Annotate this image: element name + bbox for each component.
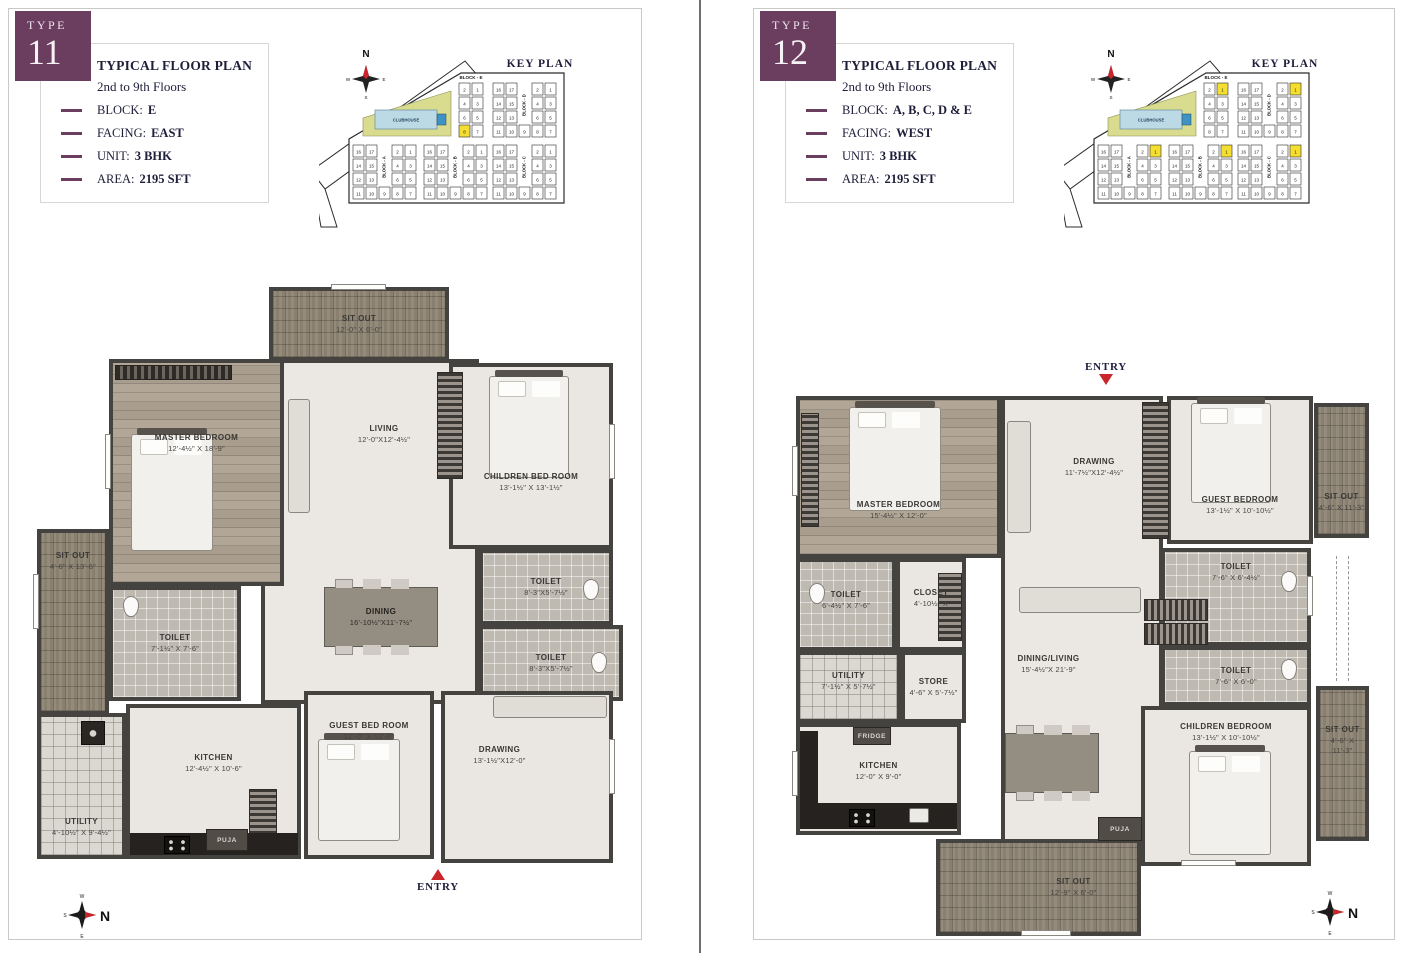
info-value: EAST bbox=[151, 126, 184, 141]
svg-text:E: E bbox=[1328, 931, 1332, 937]
room-dims-label: 12'-0" X 12'-0" bbox=[344, 732, 394, 742]
wardrobe-graphic bbox=[1144, 599, 1208, 621]
window-graphic bbox=[1181, 860, 1236, 866]
keyplan-title: KEY PLAN bbox=[507, 58, 574, 70]
room-dims-label: 4'-10½" X 9'-4½" bbox=[52, 828, 111, 838]
brochure-canvas: TYPE 11 TYPICAL FLOOR PLAN 2nd to 9th Fl… bbox=[0, 0, 1401, 953]
info-label: FACING: bbox=[97, 126, 146, 141]
entry-marker: ENTRY bbox=[406, 869, 470, 893]
svg-text:17: 17 bbox=[509, 150, 515, 155]
key-plan: CLUBHOUSENWESKEY PLANBLOCK - E2143658716… bbox=[1064, 21, 1394, 233]
entry-arrow-icon bbox=[1099, 374, 1113, 385]
svg-text:W: W bbox=[1091, 77, 1096, 82]
room-name-label: TOILET bbox=[536, 653, 567, 664]
info-value: 2195 SFT bbox=[140, 172, 191, 187]
keyplan-title: KEY PLAN bbox=[1252, 58, 1319, 70]
room-dims-label: 4'-6" X 11'-3" bbox=[1319, 503, 1364, 513]
entry-arrow-icon bbox=[431, 869, 445, 880]
room-dims-label: 12'-0" X 9'-0" bbox=[855, 772, 901, 782]
room-name-label: DINING bbox=[366, 607, 396, 618]
sofa-graphic bbox=[288, 399, 310, 513]
room-name-label: MASTER BEDROOM bbox=[155, 433, 238, 444]
svg-text:BLOCK - B: BLOCK - B bbox=[453, 156, 458, 178]
svg-text:N: N bbox=[1348, 905, 1358, 921]
room-sit-out-left: SIT OUT 4'-6" X 13'-6" bbox=[37, 529, 109, 715]
window-graphic bbox=[792, 751, 798, 796]
info-subtitle: 2nd to 9th Floors bbox=[97, 79, 268, 95]
svg-text:16: 16 bbox=[1172, 150, 1178, 155]
kitchen-counter bbox=[800, 803, 957, 829]
room-name-label: CLOSET bbox=[914, 588, 949, 599]
svg-text:17: 17 bbox=[1185, 150, 1191, 155]
wardrobe-graphic bbox=[1144, 623, 1208, 645]
dash-icon bbox=[61, 132, 82, 135]
dash-icon bbox=[61, 178, 82, 181]
info-row-unit: UNIT:3 BHK bbox=[806, 149, 1013, 164]
dining-table: DINING 16'-10½"X11'-7½" bbox=[324, 587, 438, 647]
svg-text:16: 16 bbox=[427, 150, 433, 155]
svg-text:14: 14 bbox=[1241, 102, 1247, 107]
svg-text:11: 11 bbox=[496, 192, 501, 197]
boundary-dashes bbox=[1348, 556, 1349, 681]
info-row-facing: FACING:WEST bbox=[806, 126, 1013, 141]
room-name-label: KITCHEN bbox=[859, 761, 897, 772]
room-name-label: DRAWING bbox=[479, 745, 520, 756]
info-row-facing: FACING:EAST bbox=[61, 126, 268, 141]
svg-text:S: S bbox=[1109, 95, 1112, 100]
window-graphic bbox=[1307, 576, 1313, 616]
room-dims-label: 13'-1½" X 13'-1½" bbox=[499, 483, 562, 493]
room-dims-label: 7'-1½" X 7'-6" bbox=[151, 644, 199, 654]
svg-text:14: 14 bbox=[496, 164, 502, 169]
svg-text:10: 10 bbox=[1254, 130, 1260, 135]
svg-text:16: 16 bbox=[1241, 88, 1247, 93]
window-graphic bbox=[1021, 930, 1071, 936]
svg-text:14: 14 bbox=[1172, 164, 1178, 169]
room-dims-label: 12'-0"X12'-4½" bbox=[358, 435, 410, 445]
info-row-area: AREA:2195 SFT bbox=[806, 172, 1013, 187]
info-row-block: BLOCK:E bbox=[61, 103, 268, 118]
svg-text:17: 17 bbox=[440, 150, 446, 155]
svg-text:15: 15 bbox=[1114, 164, 1120, 169]
room-dims-label: 13'-1½" X 10'-10½" bbox=[1206, 506, 1274, 516]
svg-text:17: 17 bbox=[369, 150, 375, 155]
room-dims-label: 4'-10½" X bbox=[914, 599, 948, 609]
sink-icon bbox=[909, 808, 929, 823]
info-label: FACING: bbox=[842, 126, 891, 141]
svg-text:12: 12 bbox=[356, 178, 362, 183]
bed-graphic bbox=[489, 376, 569, 478]
room-name-label: TOILET bbox=[1221, 562, 1252, 573]
info-row-unit: UNIT:3 BHK bbox=[61, 149, 268, 164]
svg-text:W: W bbox=[80, 894, 85, 900]
window-graphic bbox=[105, 434, 111, 489]
svg-text:12: 12 bbox=[496, 178, 502, 183]
room-name-label: TOILET bbox=[1221, 666, 1252, 677]
room-dims-label: 4'-6" X 5'-7½" bbox=[909, 688, 957, 698]
entry-label: ENTRY bbox=[1074, 361, 1138, 373]
svg-text:17: 17 bbox=[509, 88, 515, 93]
window-graphic bbox=[609, 739, 615, 794]
svg-text:S: S bbox=[1311, 910, 1315, 916]
svg-text:10: 10 bbox=[369, 192, 375, 197]
room-sit-out-right: SIT OUT 4'-6" X 11'-3" bbox=[1316, 686, 1369, 841]
room-dims-label: 4'-6" X 11'-3" bbox=[1320, 736, 1365, 756]
room-name-label: SIT OUT bbox=[56, 551, 90, 562]
entry-label: ENTRY bbox=[406, 881, 470, 893]
info-value: 3 BHK bbox=[880, 149, 917, 164]
svg-text:BLOCK - B: BLOCK - B bbox=[1198, 156, 1203, 178]
room-dims-label: 13'-1½"X12'-0" bbox=[473, 756, 525, 766]
compass-icon: WSEN bbox=[56, 886, 128, 940]
info-subtitle: 2nd to 9th Floors bbox=[842, 79, 1013, 95]
type-badge: TYPE 12 bbox=[760, 11, 836, 81]
info-value: E bbox=[148, 103, 156, 118]
svg-text:W: W bbox=[346, 77, 351, 82]
window-graphic bbox=[609, 424, 615, 479]
svg-text:13: 13 bbox=[509, 178, 515, 183]
svg-text:W: W bbox=[1328, 891, 1333, 897]
info-row-area: AREA:2195 SFT bbox=[61, 172, 268, 187]
room-utility: UTILITY 7'-1½" X 5'-7½" bbox=[796, 651, 901, 723]
svg-text:E: E bbox=[382, 77, 385, 82]
svg-text:S: S bbox=[364, 95, 367, 100]
compass-icon: WSEN bbox=[1304, 883, 1376, 939]
window-graphic bbox=[33, 574, 39, 629]
svg-text:16: 16 bbox=[496, 150, 502, 155]
svg-text:E: E bbox=[80, 934, 84, 940]
room-dims-label: 8'-3"X5'-7½" bbox=[524, 588, 568, 598]
svg-text:N: N bbox=[362, 49, 369, 60]
svg-text:10: 10 bbox=[509, 192, 515, 197]
sofa-graphic bbox=[1019, 587, 1141, 613]
svg-text:15: 15 bbox=[509, 102, 515, 107]
page-type-12: TYPE 12 TYPICAL FLOOR PLAN 2nd to 9th Fl… bbox=[753, 8, 1395, 940]
room-name-label: MASTER BEDROOM bbox=[857, 500, 940, 511]
room-dims-label: 8'-3"X5'-7½" bbox=[529, 664, 573, 674]
svg-text:13: 13 bbox=[509, 116, 515, 121]
room-name-label: DRAWING bbox=[1073, 457, 1114, 468]
room-name-label: SIT OUT bbox=[1325, 725, 1359, 736]
type-badge-label: TYPE bbox=[772, 18, 836, 33]
info-label: AREA: bbox=[842, 172, 880, 187]
svg-text:11: 11 bbox=[1172, 192, 1177, 197]
room-sit-out-top: SIT OUT 12'-0" X 6'-0" bbox=[269, 287, 449, 361]
svg-text:N: N bbox=[100, 908, 110, 924]
type-badge-number: 12 bbox=[772, 34, 836, 70]
room-dims-label: 12'-4½" X 10'-6" bbox=[185, 764, 242, 774]
info-label: BLOCK: bbox=[97, 103, 143, 118]
info-label: BLOCK: bbox=[842, 103, 888, 118]
room-dims-label: 11'-7½"X12'-4½" bbox=[1065, 468, 1123, 478]
room-name-label: PUJA bbox=[1110, 826, 1130, 833]
room-name-label: SIT OUT bbox=[1056, 877, 1090, 888]
room-name-label: CHILDREN BED ROOM bbox=[484, 472, 578, 483]
svg-text:16: 16 bbox=[1241, 150, 1247, 155]
bed-graphic bbox=[849, 407, 941, 511]
info-value: 3 BHK bbox=[135, 149, 172, 164]
room-name-label: LIVING bbox=[369, 424, 398, 435]
svg-text:15: 15 bbox=[369, 164, 375, 169]
room-dims-label: 6'-4½" X 7'-6" bbox=[822, 601, 870, 611]
dash-icon bbox=[806, 178, 827, 181]
room-dims-label: 16'-10½"X11'-7½" bbox=[350, 618, 413, 628]
dash-icon bbox=[806, 155, 827, 158]
svg-text:15: 15 bbox=[1254, 102, 1260, 107]
svg-text:E: E bbox=[1127, 77, 1130, 82]
svg-text:11: 11 bbox=[496, 130, 501, 135]
svg-text:11: 11 bbox=[1241, 130, 1246, 135]
room-dims-label: 12'-0" X 6'-0" bbox=[336, 325, 382, 335]
clubhouse-label: CLUBHOUSE bbox=[1138, 118, 1165, 123]
entry-marker: ENTRY bbox=[1074, 361, 1138, 385]
info-value: WEST bbox=[896, 126, 932, 141]
svg-text:15: 15 bbox=[1185, 164, 1191, 169]
svg-text:16: 16 bbox=[356, 150, 362, 155]
room-toilet-left: TOILET 6'-4½" X 7'-6" bbox=[796, 558, 896, 651]
floor-plan-type-12: MASTER BEDROOM 15'-4½" X 12'-0" GUEST BE… bbox=[791, 391, 1391, 940]
fridge-label: FRIDGE bbox=[853, 727, 891, 745]
wardrobe-graphic bbox=[115, 365, 232, 380]
room-dims-label: 7'-6" X 6'-4½" bbox=[1212, 573, 1260, 583]
keyplan-svg: CLUBHOUSENWESKEY PLANBLOCK - E2143658716… bbox=[1064, 21, 1394, 233]
info-row-block: BLOCK:A, B, C, D & E bbox=[806, 103, 1013, 118]
svg-text:11: 11 bbox=[1101, 192, 1106, 197]
svg-text:11: 11 bbox=[427, 192, 432, 197]
dash-icon bbox=[806, 132, 827, 135]
svg-text:12: 12 bbox=[1101, 178, 1107, 183]
svg-text:15: 15 bbox=[509, 164, 515, 169]
svg-text:S: S bbox=[63, 913, 67, 919]
room-dims-label: 13'-1½" X 10'-10½" bbox=[1192, 733, 1260, 743]
svg-text:10: 10 bbox=[509, 130, 515, 135]
svg-text:13: 13 bbox=[440, 178, 446, 183]
svg-text:14: 14 bbox=[427, 164, 433, 169]
svg-text:17: 17 bbox=[1254, 150, 1260, 155]
room-sit-out-bottom: SIT OUT 12'-9" X 6'-0" bbox=[936, 839, 1141, 936]
page-divider bbox=[699, 0, 701, 953]
info-value: 2195 SFT bbox=[885, 172, 936, 187]
room-name-label: GUEST BEDROOM bbox=[1202, 495, 1279, 506]
sofa-graphic bbox=[1007, 421, 1031, 533]
page-type-11: TYPE 11 TYPICAL FLOOR PLAN 2nd to 9th Fl… bbox=[8, 8, 642, 940]
bed-graphic bbox=[318, 739, 400, 841]
room-name-label: FRIDGE bbox=[858, 733, 886, 740]
svg-text:12: 12 bbox=[1241, 116, 1247, 121]
svg-text:12: 12 bbox=[1172, 178, 1178, 183]
svg-text:BLOCK - C: BLOCK - C bbox=[522, 156, 527, 178]
type-badge-label: TYPE bbox=[27, 18, 91, 33]
info-value: A, B, C, D & E bbox=[893, 103, 972, 118]
svg-text:BLOCK - E: BLOCK - E bbox=[460, 75, 483, 80]
svg-text:13: 13 bbox=[1254, 178, 1260, 183]
room-dining-living: DINING/LIVING 15'-4½"X 21'-9" bbox=[991, 654, 1106, 675]
info-label: UNIT: bbox=[97, 149, 130, 164]
room-name-label: TOILET bbox=[831, 590, 862, 601]
info-label: AREA: bbox=[97, 172, 135, 187]
room-name-label: PUJA bbox=[217, 837, 237, 844]
svg-text:10: 10 bbox=[1185, 192, 1191, 197]
sofa-graphic bbox=[493, 696, 607, 718]
room-puja: PUJA bbox=[1098, 817, 1142, 841]
room-dims-label: 4'-6" X 13'-6" bbox=[50, 562, 96, 572]
info-title: TYPICAL FLOOR PLAN bbox=[842, 58, 1013, 74]
key-plan: CLUBHOUSENWESKEY PLANBLOCK - E2143658716… bbox=[319, 21, 642, 233]
compass-svg: WSEN bbox=[1304, 883, 1376, 939]
stove-icon bbox=[164, 836, 190, 854]
room-name-label: TOILET bbox=[160, 633, 191, 644]
dash-icon bbox=[61, 155, 82, 158]
stove-icon bbox=[849, 809, 875, 827]
floor-plan-type-11: SIT OUT 12'-0" X 6'-0" MASTER BEDROOM 12… bbox=[31, 284, 641, 876]
room-dims-label: 15'-4½"X 21'-9" bbox=[1021, 665, 1076, 675]
svg-text:10: 10 bbox=[1114, 192, 1120, 197]
svg-text:14: 14 bbox=[1241, 164, 1247, 169]
type-badge-number: 11 bbox=[27, 34, 91, 70]
info-label: UNIT: bbox=[842, 149, 875, 164]
room-store: STORE 4'-6" X 5'-7½" bbox=[901, 651, 966, 723]
room-dims-label: 7'-6" X 6'-0" bbox=[1215, 677, 1257, 687]
kitchen-counter bbox=[800, 731, 818, 807]
type-badge: TYPE 11 bbox=[15, 11, 91, 81]
room-dims-label: 7'-1½" X 5'-7½" bbox=[821, 682, 876, 692]
dining-table bbox=[1005, 733, 1099, 793]
svg-text:15: 15 bbox=[440, 164, 446, 169]
svg-text:16: 16 bbox=[1101, 150, 1107, 155]
boundary-dashes bbox=[1336, 556, 1337, 681]
room-name-label: STORE bbox=[919, 677, 948, 688]
compass-svg: WSEN bbox=[56, 886, 128, 940]
svg-text:14: 14 bbox=[1101, 164, 1107, 169]
window-graphic bbox=[331, 284, 386, 290]
svg-text:13: 13 bbox=[1114, 178, 1120, 183]
dash-icon bbox=[806, 109, 827, 112]
room-name-label: SIT OUT bbox=[342, 314, 376, 325]
room-sit-out-top-right: SIT OUT 4'-6" X 11'-3" bbox=[1314, 403, 1369, 538]
clubhouse-label: CLUBHOUSE bbox=[393, 118, 420, 123]
room-dims-label: 12'-4½" X 18'-9" bbox=[168, 444, 225, 454]
room-name-label: DINING/LIVING bbox=[1017, 654, 1079, 665]
svg-text:12: 12 bbox=[1241, 178, 1247, 183]
svg-text:BLOCK - A: BLOCK - A bbox=[1127, 156, 1132, 177]
svg-text:17: 17 bbox=[1114, 150, 1120, 155]
room-living: LIVING 12'-0"X12'-4½" bbox=[326, 424, 442, 445]
svg-text:BLOCK - D: BLOCK - D bbox=[522, 94, 527, 116]
bed-graphic bbox=[1189, 751, 1271, 855]
svg-text:17: 17 bbox=[1254, 88, 1260, 93]
keyplan-svg: CLUBHOUSENWESKEY PLANBLOCK - E2143658716… bbox=[319, 21, 642, 233]
svg-text:14: 14 bbox=[356, 164, 362, 169]
svg-text:16: 16 bbox=[496, 88, 502, 93]
svg-text:15: 15 bbox=[1254, 164, 1260, 169]
room-name-label: UTILITY bbox=[832, 671, 865, 682]
svg-text:13: 13 bbox=[369, 178, 375, 183]
svg-text:13: 13 bbox=[1185, 178, 1191, 183]
wardrobe-graphic bbox=[801, 413, 819, 527]
bed-graphic bbox=[1191, 403, 1271, 503]
room-name-label: UTILITY bbox=[65, 817, 98, 828]
dash-icon bbox=[61, 109, 82, 112]
svg-text:BLOCK - A: BLOCK - A bbox=[382, 156, 387, 177]
svg-text:11: 11 bbox=[1241, 192, 1246, 197]
svg-text:BLOCK - D: BLOCK - D bbox=[1267, 94, 1272, 116]
svg-text:14: 14 bbox=[496, 102, 502, 107]
room-dims-label: 15'-4½" X 12'-0" bbox=[870, 511, 927, 521]
svg-text:12: 12 bbox=[427, 178, 433, 183]
svg-text:10: 10 bbox=[1254, 192, 1260, 197]
svg-text:N: N bbox=[1107, 49, 1114, 60]
svg-text:BLOCK - E: BLOCK - E bbox=[1205, 75, 1228, 80]
svg-text:11: 11 bbox=[356, 192, 361, 197]
svg-text:10: 10 bbox=[440, 192, 446, 197]
washing-machine-icon bbox=[81, 721, 105, 745]
info-title: TYPICAL FLOOR PLAN bbox=[97, 58, 268, 74]
room-name-label: GUEST BED ROOM bbox=[329, 721, 408, 732]
room-name-label: CHILDREN BEDROOM bbox=[1180, 722, 1272, 733]
room-puja: PUJA bbox=[206, 829, 248, 851]
room-name-label: SIT OUT bbox=[1324, 492, 1358, 503]
svg-text:13: 13 bbox=[1254, 116, 1260, 121]
room-dims-label: 12'-9" X 6'-0" bbox=[1050, 888, 1096, 898]
room-name-label: KITCHEN bbox=[194, 753, 232, 764]
svg-text:12: 12 bbox=[496, 116, 502, 121]
room-name-label: TOILET bbox=[531, 577, 562, 588]
window-graphic bbox=[792, 446, 798, 496]
room-drawing: DRAWING 11'-7½"X12'-4½" bbox=[1039, 457, 1149, 478]
svg-text:BLOCK - C: BLOCK - C bbox=[1267, 156, 1272, 178]
